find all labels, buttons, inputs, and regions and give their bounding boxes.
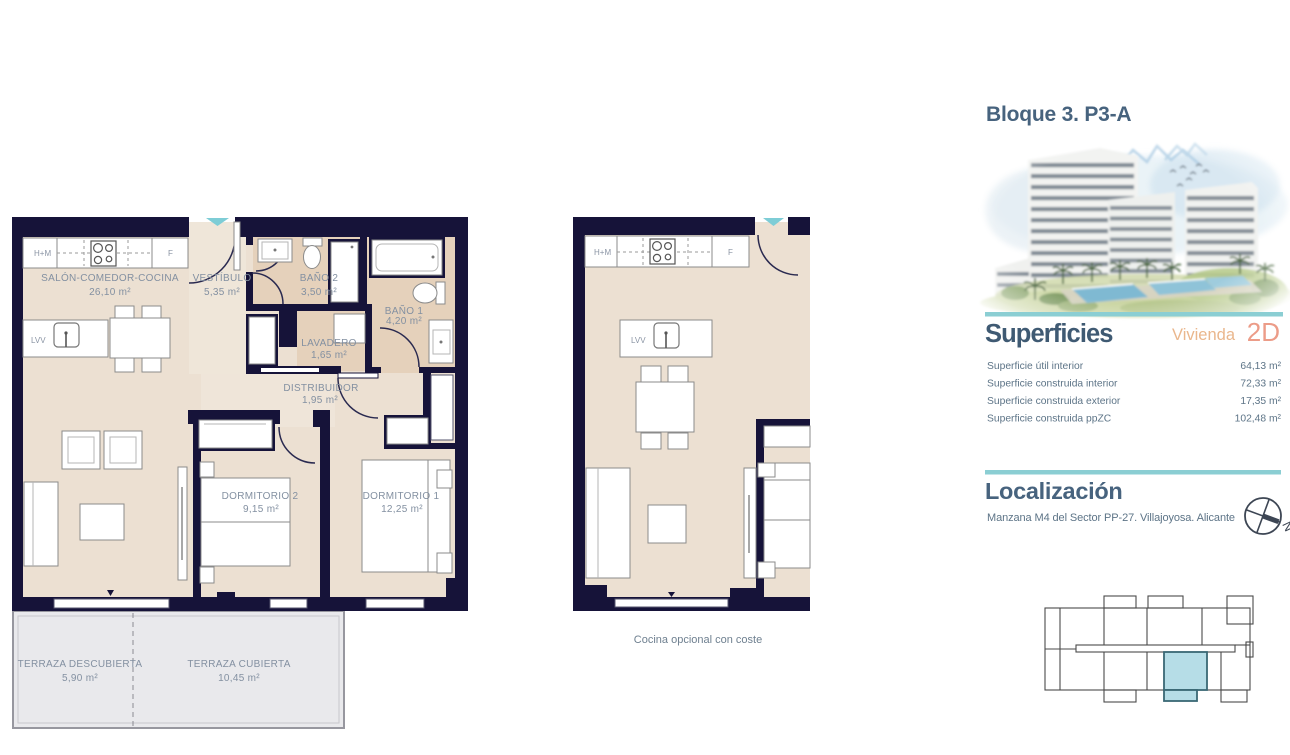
- svg-text:5,90 m²: 5,90 m²: [62, 673, 98, 684]
- svg-text:102,48 m²: 102,48 m²: [1235, 414, 1282, 425]
- svg-text:Bloque 3. P3-A: Bloque 3. P3-A: [986, 103, 1131, 126]
- svg-text:LVV: LVV: [31, 336, 46, 345]
- svg-text:DORMITORIO 2: DORMITORIO 2: [222, 491, 299, 502]
- svg-text:17,35 m²: 17,35 m²: [1240, 396, 1281, 407]
- svg-text:Superficie construida exterior: Superficie construida exterior: [987, 396, 1121, 407]
- svg-text:1,65 m²: 1,65 m²: [311, 350, 347, 361]
- svg-text:TERRAZA DESCUBIERTA: TERRAZA DESCUBIERTA: [18, 659, 143, 670]
- svg-text:Superficies: Superficies: [985, 320, 1113, 348]
- svg-text:Localización: Localización: [985, 478, 1122, 504]
- svg-text:VESTÍBULO: VESTÍBULO: [193, 271, 252, 284]
- svg-text:5,35 m²: 5,35 m²: [204, 287, 240, 298]
- svg-text:2D: 2D: [1247, 317, 1280, 347]
- svg-text:Superficie construida interior: Superficie construida interior: [987, 379, 1118, 390]
- svg-text:DISTRIBUIDOR: DISTRIBUIDOR: [283, 383, 358, 394]
- svg-text:Cocina opcional con coste: Cocina opcional con coste: [634, 634, 762, 646]
- svg-text:26,10 m²: 26,10 m²: [89, 287, 131, 298]
- svg-text:64,13 m²: 64,13 m²: [1240, 361, 1281, 372]
- svg-text:F: F: [168, 249, 173, 258]
- svg-text:Superficie construida ppZC: Superficie construida ppZC: [987, 414, 1112, 425]
- svg-text:SALÓN-COMEDOR-COCINA: SALÓN-COMEDOR-COCINA: [41, 271, 179, 284]
- svg-text:TERRAZA CUBIERTA: TERRAZA CUBIERTA: [187, 659, 290, 670]
- svg-text:3,50 m²: 3,50 m²: [301, 287, 337, 298]
- svg-text:LVV: LVV: [631, 336, 646, 345]
- svg-text:9,15 m²: 9,15 m²: [243, 504, 279, 515]
- svg-text:4,20 m²: 4,20 m²: [386, 316, 422, 327]
- svg-text:F: F: [728, 248, 733, 257]
- svg-text:H+M: H+M: [34, 249, 51, 258]
- svg-text:LAVADERO: LAVADERO: [301, 338, 356, 349]
- svg-text:H+M: H+M: [594, 248, 611, 257]
- svg-text:Manzana M4 del Sector PP-27. V: Manzana M4 del Sector PP-27. Villajoyosa…: [987, 512, 1235, 524]
- svg-text:BAÑO 2: BAÑO 2: [300, 271, 339, 284]
- svg-text:12,25 m²: 12,25 m²: [381, 504, 423, 515]
- svg-text:72,33 m²: 72,33 m²: [1240, 379, 1281, 390]
- svg-text:10,45 m²: 10,45 m²: [218, 673, 260, 684]
- svg-text:Vivienda: Vivienda: [1172, 326, 1236, 344]
- svg-text:DORMITORIO 1: DORMITORIO 1: [363, 491, 440, 502]
- svg-text:Superficie útil interior: Superficie útil interior: [987, 361, 1084, 372]
- svg-text:1,95 m²: 1,95 m²: [302, 395, 338, 406]
